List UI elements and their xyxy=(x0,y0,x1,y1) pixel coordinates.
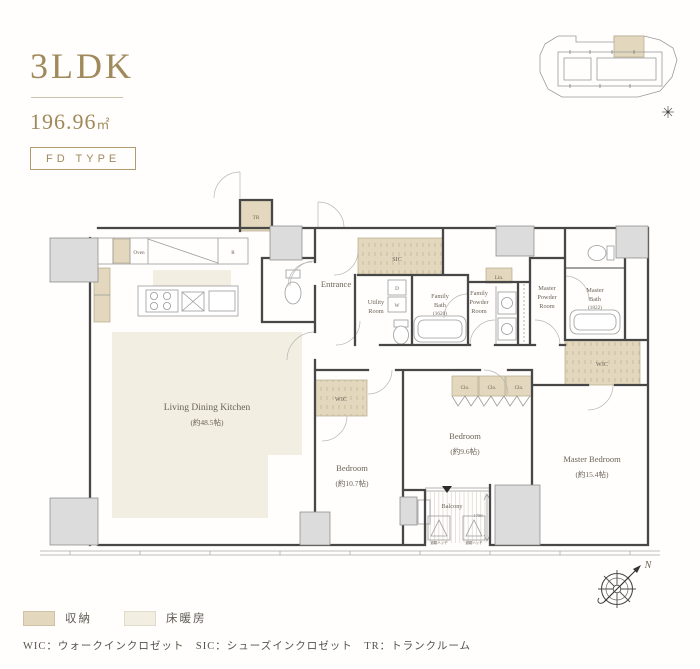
hall-cabinet xyxy=(518,282,530,345)
toilet-icon-wc xyxy=(285,270,301,304)
label-utility-2: Room xyxy=(368,308,383,315)
label-master-bath-2: Bath xyxy=(589,296,602,303)
label-master-bath-1: Master xyxy=(586,287,604,294)
keyplan-highlighted-unit xyxy=(614,36,644,57)
label-bedroom1-size: (約10.7帖) xyxy=(335,478,369,488)
label-linen: Lin. xyxy=(495,275,504,281)
abbreviation-note: WIC：ウォークインクロゼット SIC：シューズインクロゼット TR：トランクル… xyxy=(23,638,471,653)
storage-swatch xyxy=(23,611,55,626)
storage-label: 収納 xyxy=(65,610,92,626)
label-washer: W xyxy=(395,303,400,309)
label-family-bath-1: Family xyxy=(431,293,450,300)
label-entrance: Entrance xyxy=(321,279,351,289)
label-master-powder-3: Room xyxy=(539,303,554,310)
svg-text:N: N xyxy=(644,560,653,571)
keyplan-compass-icon xyxy=(662,106,674,118)
label-sic: SIC xyxy=(392,256,402,263)
label-wic-bedroom1: WIC xyxy=(335,396,347,403)
bedroom2-closets xyxy=(452,376,532,406)
label-clo-1: Clo. xyxy=(461,385,470,391)
label-fridge: R xyxy=(231,250,235,256)
floor-heating-label: 床暖房 xyxy=(166,610,207,626)
label-master-bath-size: (1822) xyxy=(588,304,602,311)
kitchen-island xyxy=(138,286,238,316)
label-ldk: Living Dining Kitchen xyxy=(164,403,251,413)
emergency-partition-marker xyxy=(442,486,452,493)
lower-balcony-line xyxy=(40,551,660,555)
label-master-powder-2: Powder xyxy=(537,294,557,301)
label-bedroom2-size: (約9.6帖) xyxy=(450,446,480,456)
label-family-bath-size: (1620) xyxy=(433,310,447,317)
label-family-powder-2: Powder xyxy=(469,299,489,306)
label-bedroom1: Bedroom xyxy=(336,463,368,473)
label-utility-1: Utility xyxy=(368,299,385,306)
legend: 収納 床暖房 WIC：ウォークインクロゼット SIC：シューズインクロゼット T… xyxy=(23,610,471,653)
label-family-powder-1: Family xyxy=(470,290,489,297)
label-family-bath-2: Bath xyxy=(434,302,447,309)
label-clo-3: Clo. xyxy=(515,385,524,391)
label-escape-hatch-1: 避難ハッチ xyxy=(431,540,449,545)
building-keyplan xyxy=(540,36,677,118)
floor-plan-drawing: Living Dining Kitchen (約48.5帖) Entrance … xyxy=(0,0,700,669)
vanity-basins-family xyxy=(496,286,516,344)
toilet-icon-utility xyxy=(394,320,409,344)
label-escape-hatch-2: 避難ハッチ xyxy=(466,540,484,545)
label-master-bedroom-size: (約15.4帖) xyxy=(575,469,609,479)
kitchen-cabinet xyxy=(113,239,130,263)
label-wic-master: WIC xyxy=(596,361,608,368)
keyplan-outline xyxy=(540,36,677,97)
keyplan-core xyxy=(558,52,662,86)
label-ldk-size: (約48.5帖) xyxy=(190,417,224,427)
label-oven: Oven xyxy=(133,250,145,256)
label-master-bedroom: Master Bedroom xyxy=(563,454,621,464)
label-bedroom2: Bedroom xyxy=(449,431,481,441)
label-balcony-dimension: 1700 xyxy=(473,513,483,518)
label-clo-2: Clo. xyxy=(488,385,497,391)
floor-heating-kitchen xyxy=(153,270,231,287)
toilet-icon-master xyxy=(588,246,614,261)
label-trunk-room: TR xyxy=(253,215,260,221)
compass-rose: N xyxy=(598,560,653,608)
label-family-powder-3: Room xyxy=(471,308,486,315)
floor-heating-swatch xyxy=(124,611,156,626)
label-balcony: Balcony xyxy=(442,503,464,510)
label-master-powder-1: Master xyxy=(538,285,556,292)
bathtub-family xyxy=(414,316,466,342)
label-dryer: D xyxy=(395,286,399,292)
bathtub-master xyxy=(570,310,620,334)
